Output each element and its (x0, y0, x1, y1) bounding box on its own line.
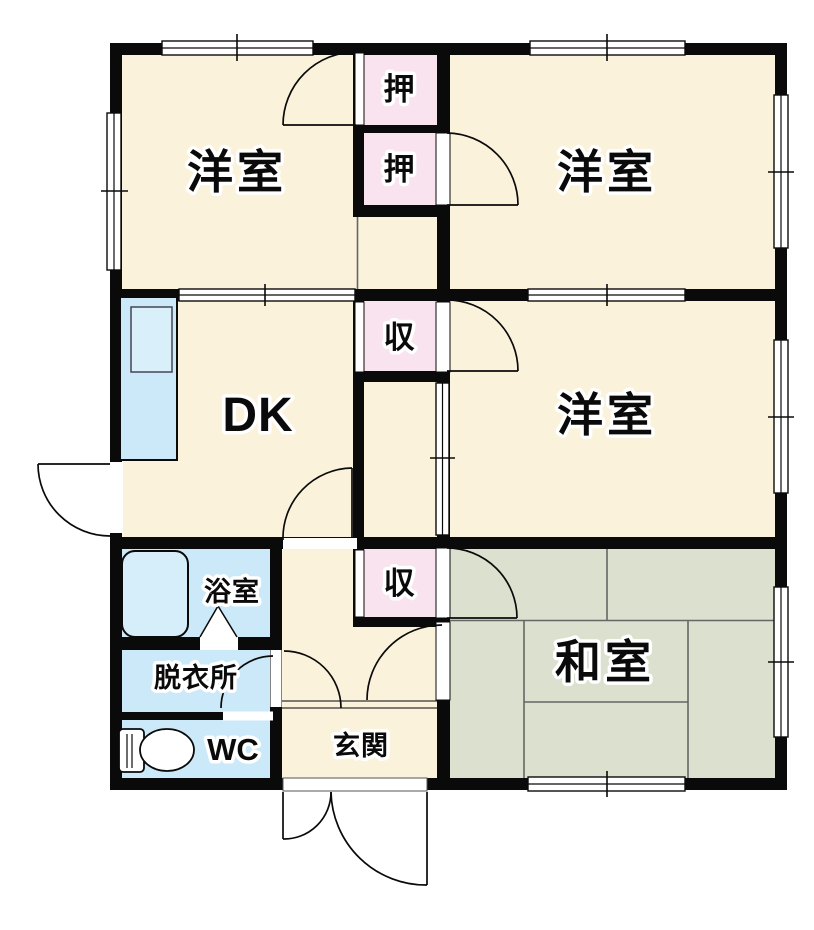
bathtub (122, 551, 188, 637)
dk-doorway-gap (283, 538, 357, 549)
wall-bath-dressing-a (110, 637, 200, 650)
closet-upper-2-opening (436, 133, 450, 205)
storage-lower-west-opening (355, 550, 364, 617)
floor-plan-drawing: 洋室 洋室 洋室 DK 和室 押 押 収 収 浴室 脱衣所 WC 玄関 (0, 0, 814, 930)
kitchen-sink (131, 307, 172, 372)
kitchen-backdoor-gap (108, 462, 123, 533)
door-entrance-main (283, 792, 427, 885)
toilet-bowl-icon (119, 729, 194, 772)
label-western-room-middle: 洋室 (557, 389, 657, 441)
entrance-opening (283, 778, 427, 791)
bath-doorway-gap (200, 637, 238, 650)
japanese-room-door-opening (436, 548, 450, 618)
label-japanese-room: 和室 (555, 636, 655, 688)
label-dining-kitchen: DK (222, 389, 293, 442)
label-dressing-room: 脱衣所 (154, 662, 238, 693)
label-western-room-top-right: 洋室 (557, 146, 657, 198)
wall-closet-divider (353, 125, 450, 133)
hall-door-leaf (436, 622, 450, 700)
storage-mid-west-opening (355, 302, 364, 372)
label-toilet: WC (207, 732, 259, 767)
label-bathroom: 浴室 (204, 576, 260, 607)
label-storage-lower: 収 (384, 566, 415, 601)
dressing-room-doorway-gap (271, 650, 282, 707)
label-western-room-top-left: 洋室 (187, 146, 287, 198)
storage-mid-east-opening (436, 302, 450, 372)
wall-closet-bottom (353, 205, 450, 217)
wall-storage-mid-bottom (353, 371, 450, 382)
label-closet-upper-2: 押 (384, 152, 415, 187)
label-closet-upper-1: 押 (384, 72, 415, 107)
label-storage-mid: 収 (384, 320, 415, 355)
door-kitchen-backdoor (38, 464, 110, 536)
label-entrance: 玄関 (333, 730, 389, 761)
closet-upper-1-opening (355, 53, 364, 125)
floor-plan-page: 洋室 洋室 洋室 DK 和室 押 押 収 収 浴室 脱衣所 WC 玄関 (0, 0, 814, 930)
wall-dressing-wc-a (110, 712, 223, 720)
wc-doorway-gap (223, 712, 273, 721)
